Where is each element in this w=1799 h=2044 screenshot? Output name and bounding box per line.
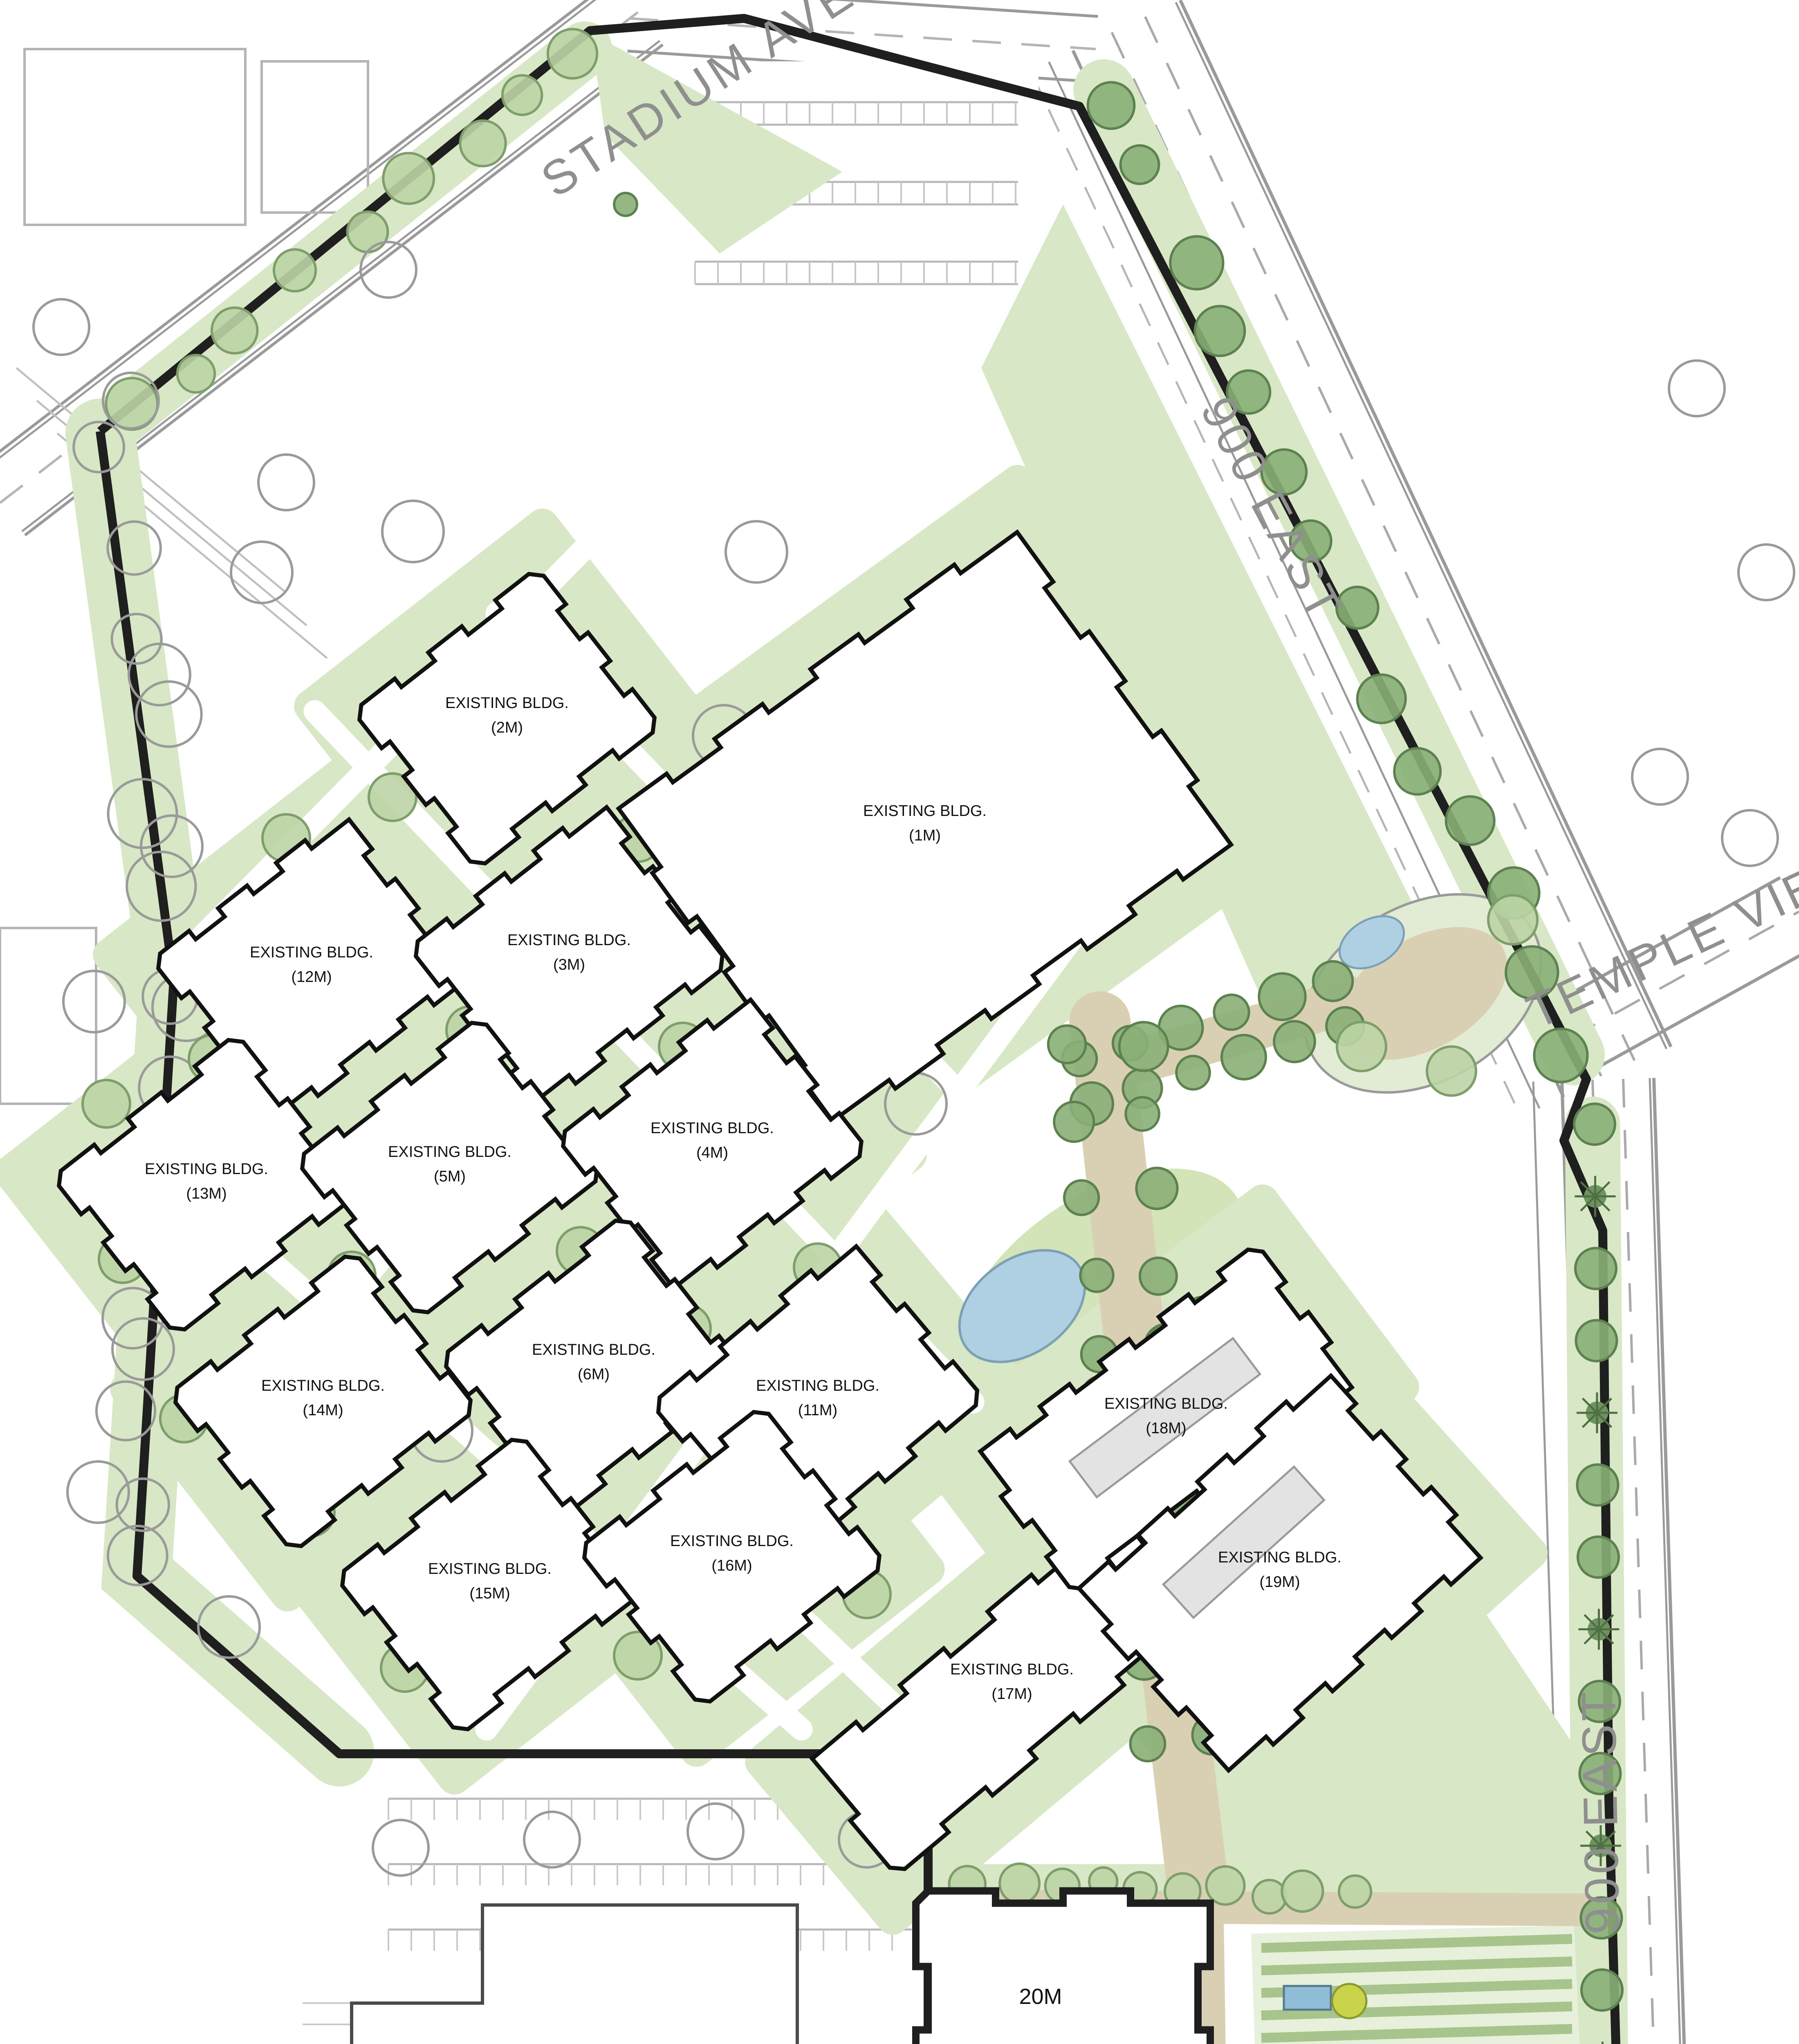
building-1m-code: (1M) xyxy=(909,827,941,844)
splash-pad xyxy=(1332,1984,1366,2018)
tree-icon xyxy=(1054,1102,1094,1142)
tree-icon xyxy=(1574,1104,1615,1145)
tree-icon xyxy=(1581,1970,1622,2010)
building-4m-label: EXISTING BLDG. xyxy=(651,1120,774,1137)
tree-icon xyxy=(382,501,444,562)
building-16m-label: EXISTING BLDG. xyxy=(670,1533,794,1550)
tree-icon xyxy=(1126,1097,1159,1131)
building-2m-code: (2M) xyxy=(491,719,523,736)
building-upb-sasb xyxy=(176,1905,797,2044)
building-2m-label: EXISTING BLDG. xyxy=(445,695,569,712)
tree-icon xyxy=(258,455,314,510)
building-15m-label: EXISTING BLDG. xyxy=(428,1560,552,1578)
building-11m-code: (11M) xyxy=(798,1402,837,1419)
tree-icon xyxy=(373,1820,428,1876)
tree-icon xyxy=(1131,1726,1165,1761)
building-4m-code: (4M) xyxy=(696,1144,728,1161)
tree-icon xyxy=(274,249,316,291)
tree-icon xyxy=(614,193,637,216)
tree-icon xyxy=(1722,810,1778,866)
tree-icon xyxy=(1578,1537,1619,1578)
tree-icon xyxy=(1253,1880,1286,1914)
tree-icon xyxy=(1195,306,1245,356)
tree-icon xyxy=(460,121,505,166)
building-14m-code: (14M) xyxy=(303,1402,343,1419)
tree-icon xyxy=(1488,895,1537,944)
tree-icon xyxy=(726,521,787,583)
building-6m-code: (6M) xyxy=(578,1366,610,1383)
tree-icon xyxy=(1282,1871,1323,1912)
tree-icon xyxy=(502,75,542,115)
tree-icon xyxy=(1575,1248,1616,1289)
tree-icon xyxy=(1427,1047,1476,1096)
tree-icon xyxy=(1206,1867,1244,1905)
tree-icon xyxy=(1170,236,1223,289)
tree-icon xyxy=(1394,748,1440,794)
tree-icon xyxy=(212,308,258,354)
tree-icon xyxy=(1080,1259,1113,1292)
tree-icon xyxy=(1337,1022,1386,1071)
street-label-3: 900 EAST xyxy=(1572,1688,1630,1935)
building-18m-code: (18M) xyxy=(1146,1420,1186,1437)
tree-icon xyxy=(688,1804,743,1859)
tree-icon xyxy=(1274,1021,1315,1062)
building-11m-label: EXISTING BLDG. xyxy=(756,1377,879,1394)
tree-icon xyxy=(1576,1320,1617,1361)
tree-icon xyxy=(383,153,434,204)
building-5m-label: EXISTING BLDG. xyxy=(388,1143,511,1161)
tree-icon xyxy=(1259,973,1306,1020)
building-20m-label: 20M xyxy=(1019,1984,1062,2009)
building-12m-code: (12M) xyxy=(291,968,332,986)
building-3m-label: EXISTING BLDG. xyxy=(507,932,631,949)
tree-icon xyxy=(1121,146,1159,184)
tree-icon xyxy=(63,971,125,1032)
street-900-east-right xyxy=(1654,1078,1703,2044)
tree-icon xyxy=(1632,749,1688,805)
tree-icon xyxy=(1577,1465,1618,1506)
building-13m-code: (13M) xyxy=(186,1185,227,1202)
palm-tree-icon xyxy=(1579,1609,1620,1650)
tree-icon xyxy=(1088,82,1135,129)
tree-icon xyxy=(34,299,89,355)
context-building xyxy=(0,928,96,1104)
tree-icon xyxy=(1000,1864,1039,1903)
building-13m-label: EXISTING BLDG. xyxy=(145,1161,268,1178)
building-19m-label: EXISTING BLDG. xyxy=(1218,1549,1341,1566)
tree-icon xyxy=(83,1080,130,1127)
building-3m-code: (3M) xyxy=(553,956,585,973)
tree-icon xyxy=(1048,1026,1086,1063)
tree-icon xyxy=(1119,1022,1168,1071)
tree-icon xyxy=(177,355,215,392)
building-16m-code: (16M) xyxy=(711,1557,752,1574)
building-18m-label: EXISTING BLDG. xyxy=(1104,1395,1228,1412)
tree-icon xyxy=(1339,1876,1371,1907)
palm-tree-icon xyxy=(1577,1392,1617,1433)
building-19m-code: (19M) xyxy=(1259,1573,1300,1591)
street-stadium-ave xyxy=(632,0,1098,16)
building-15m-code: (15M) xyxy=(469,1585,510,1602)
building-12m-label: EXISTING BLDG. xyxy=(250,944,373,961)
pool xyxy=(1284,1986,1331,2010)
tree-icon xyxy=(1214,995,1249,1029)
building-20m xyxy=(916,1891,1210,2044)
site-plan-drawing: BUSBUSBUS EXISTING BLDG.(2M)EXISTING BLD… xyxy=(0,0,1799,2044)
tree-icon xyxy=(524,1812,580,1867)
tree-icon xyxy=(348,212,388,252)
tree-icon xyxy=(1176,1056,1210,1089)
tree-icon xyxy=(1064,1180,1099,1215)
tree-icon xyxy=(548,29,597,78)
building-1m-label: EXISTING BLDG. xyxy=(863,802,987,820)
building-14m-label: EXISTING BLDG. xyxy=(261,1377,385,1394)
building-17m-code: (17M) xyxy=(991,1685,1032,1703)
context-building xyxy=(25,49,245,225)
building-17m-label: EXISTING BLDG. xyxy=(950,1661,1074,1678)
street-label-2: TEMPLE VIEW xyxy=(1519,836,1799,1040)
tree-icon xyxy=(1738,545,1794,600)
building-5m-code: (5M) xyxy=(434,1168,466,1185)
tree-icon xyxy=(1140,1258,1177,1295)
tree-icon xyxy=(1669,361,1725,416)
tree-icon xyxy=(1313,961,1353,1001)
tree-icon xyxy=(1446,796,1494,845)
tree-icon xyxy=(1222,1035,1266,1079)
building-6m-label: EXISTING BLDG. xyxy=(532,1341,655,1358)
tree-icon xyxy=(1357,675,1406,723)
tree-icon xyxy=(1136,1168,1177,1209)
context-building xyxy=(262,61,368,213)
palm-tree-icon xyxy=(1575,1176,1616,1217)
